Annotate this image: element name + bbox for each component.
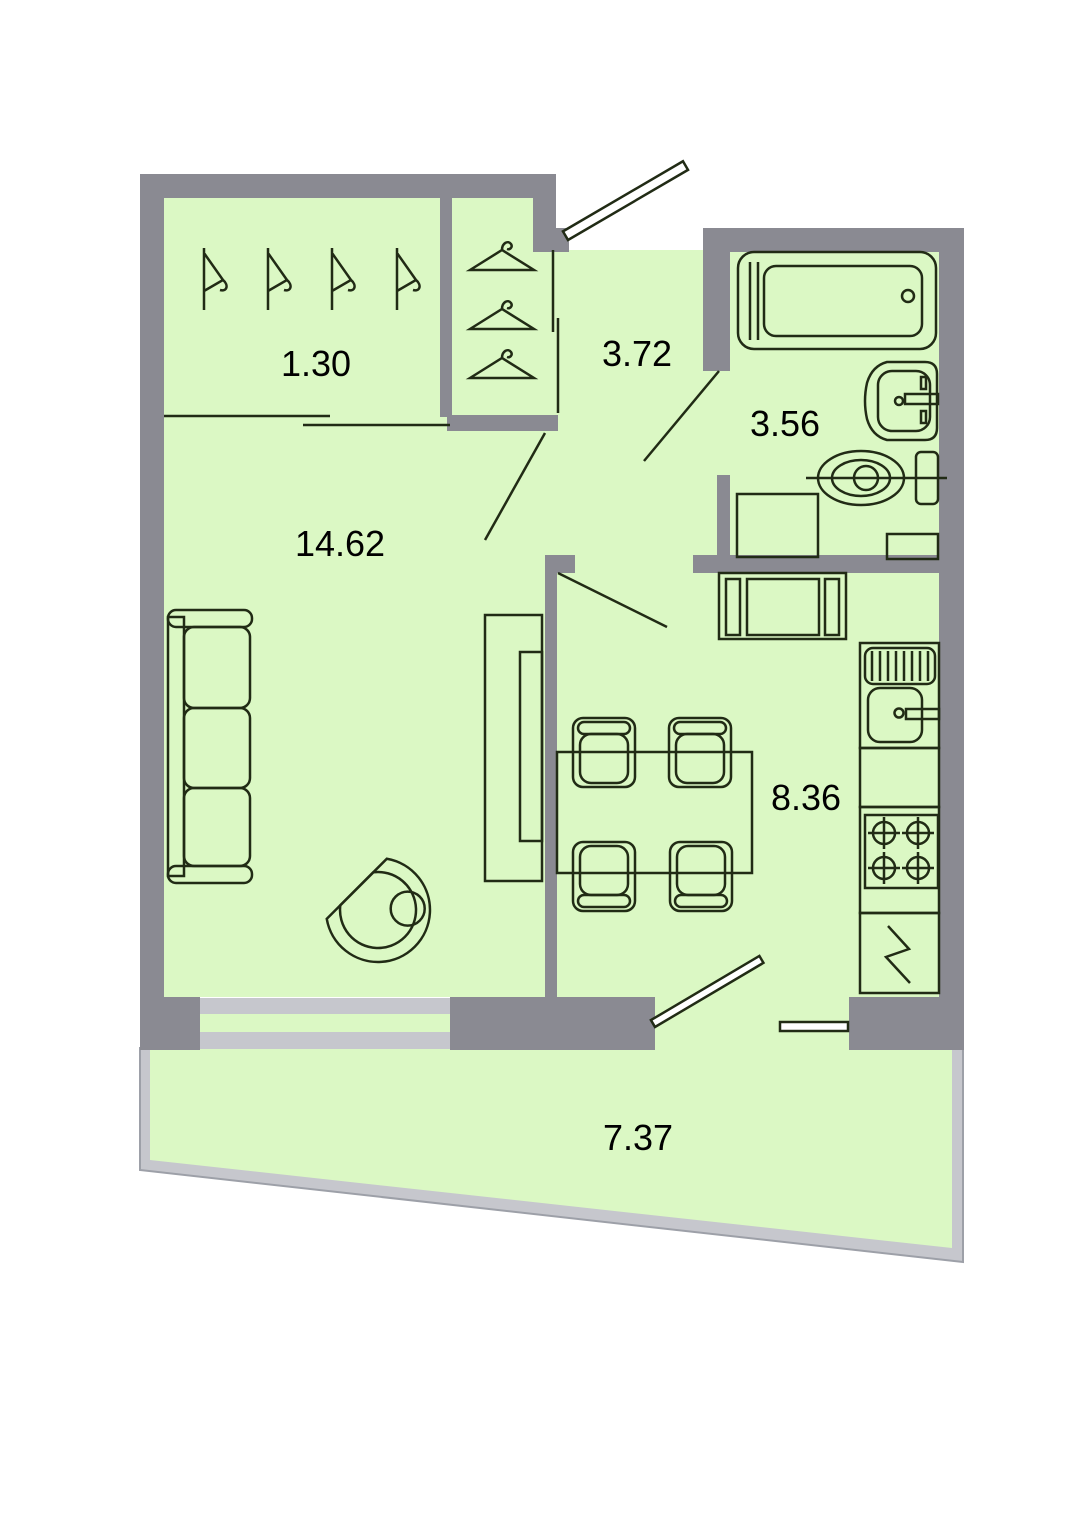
- bathroom-left-wall-upper: [703, 228, 730, 371]
- window-frame-inner: [200, 1032, 450, 1049]
- entrance-jamb-upper: [533, 174, 556, 230]
- living-room-window: [200, 998, 450, 1049]
- room-label-balcony: 7.37: [603, 1117, 673, 1158]
- balcony-floor: [150, 1048, 952, 1248]
- floor-plan: 1.30 3.72 3.56 14.62 8.36 7.37: [0, 0, 1085, 1536]
- bathroom-top-wall: [703, 228, 964, 252]
- bottom-wall-middle: [450, 997, 655, 1050]
- floor-left: [164, 198, 553, 997]
- entrance-door-leaf: [563, 161, 688, 240]
- left-wall: [140, 174, 164, 1050]
- right-wall: [939, 228, 964, 1050]
- top-wall: [140, 174, 553, 198]
- window-glass: [200, 1014, 450, 1032]
- closet-bottom-wall: [447, 415, 558, 431]
- room-label-bathroom: 3.56: [750, 403, 820, 444]
- room-label-hallway: 3.72: [602, 333, 672, 374]
- room-label-living-room: 14.62: [295, 523, 385, 564]
- closet-divider-wall: [440, 198, 452, 417]
- room-label-kitchen: 8.36: [771, 777, 841, 818]
- room-label-wardrobe: 1.30: [281, 343, 351, 384]
- bottom-wall-right: [849, 997, 964, 1050]
- living-kitchen-wall: [545, 555, 557, 997]
- entrance-door: [563, 161, 688, 240]
- balcony-window-sill: [780, 1022, 848, 1031]
- window-frame-outer: [200, 998, 450, 1014]
- floor-plan-page: 1.30 3.72 3.56 14.62 8.36 7.37: [0, 0, 1085, 1536]
- bathroom-left-wall-stub: [717, 475, 730, 557]
- bottom-wall-left: [140, 997, 200, 1050]
